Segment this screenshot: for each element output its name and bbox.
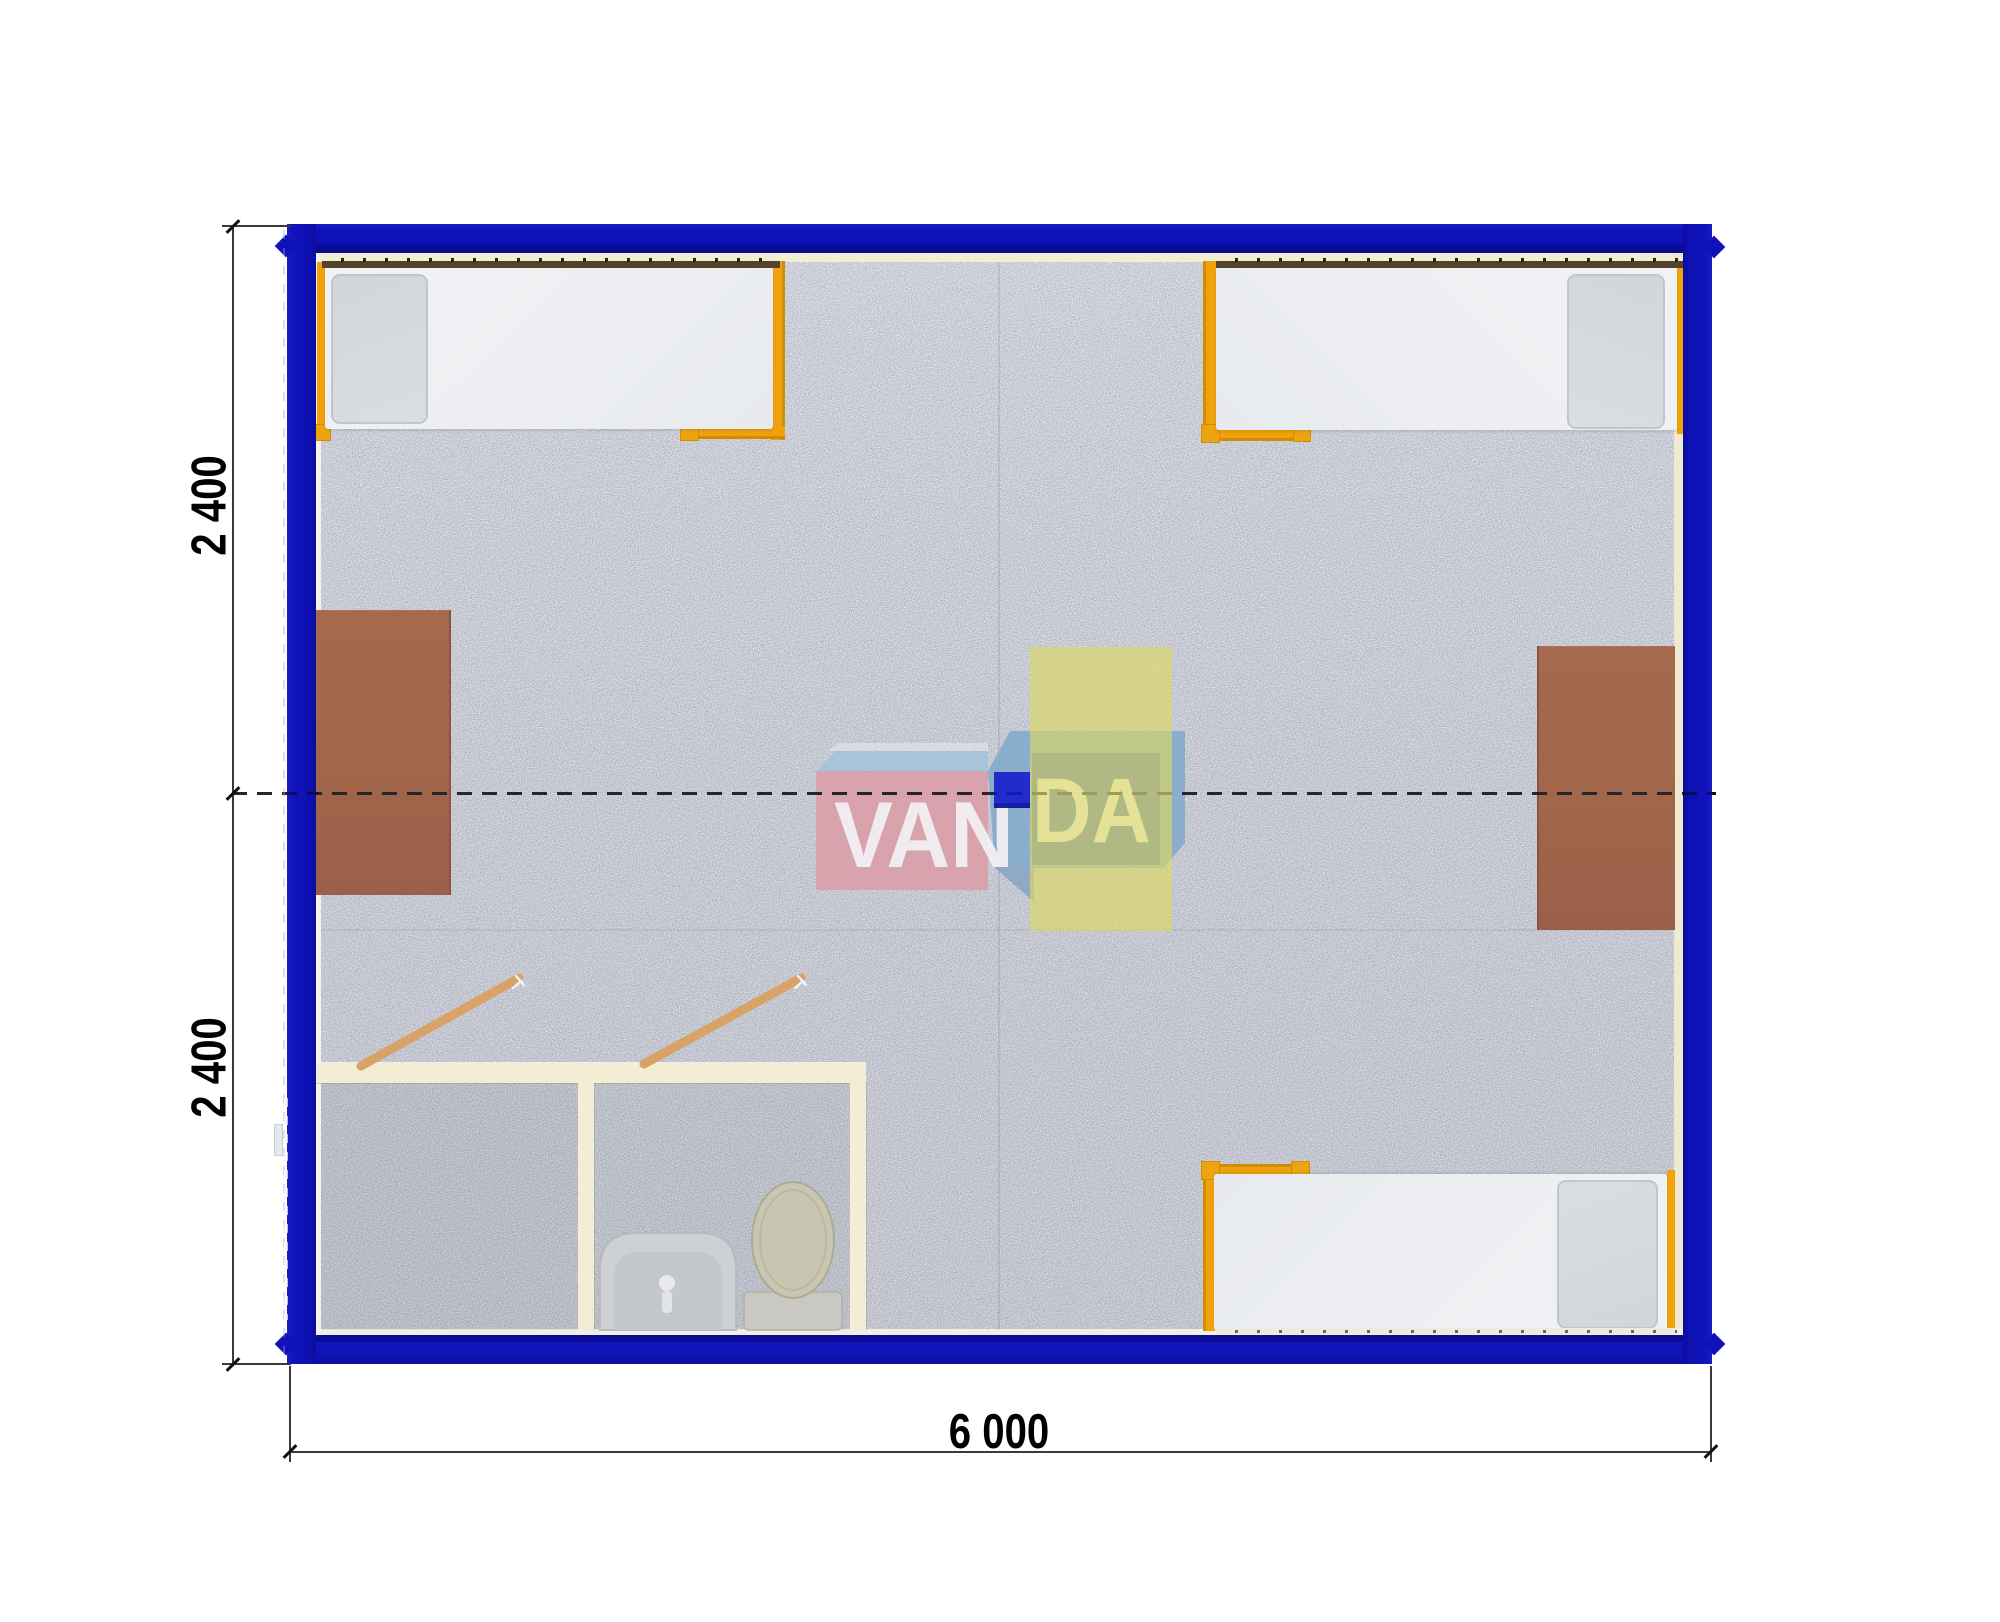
svg-text:VAN: VAN xyxy=(834,782,1014,887)
